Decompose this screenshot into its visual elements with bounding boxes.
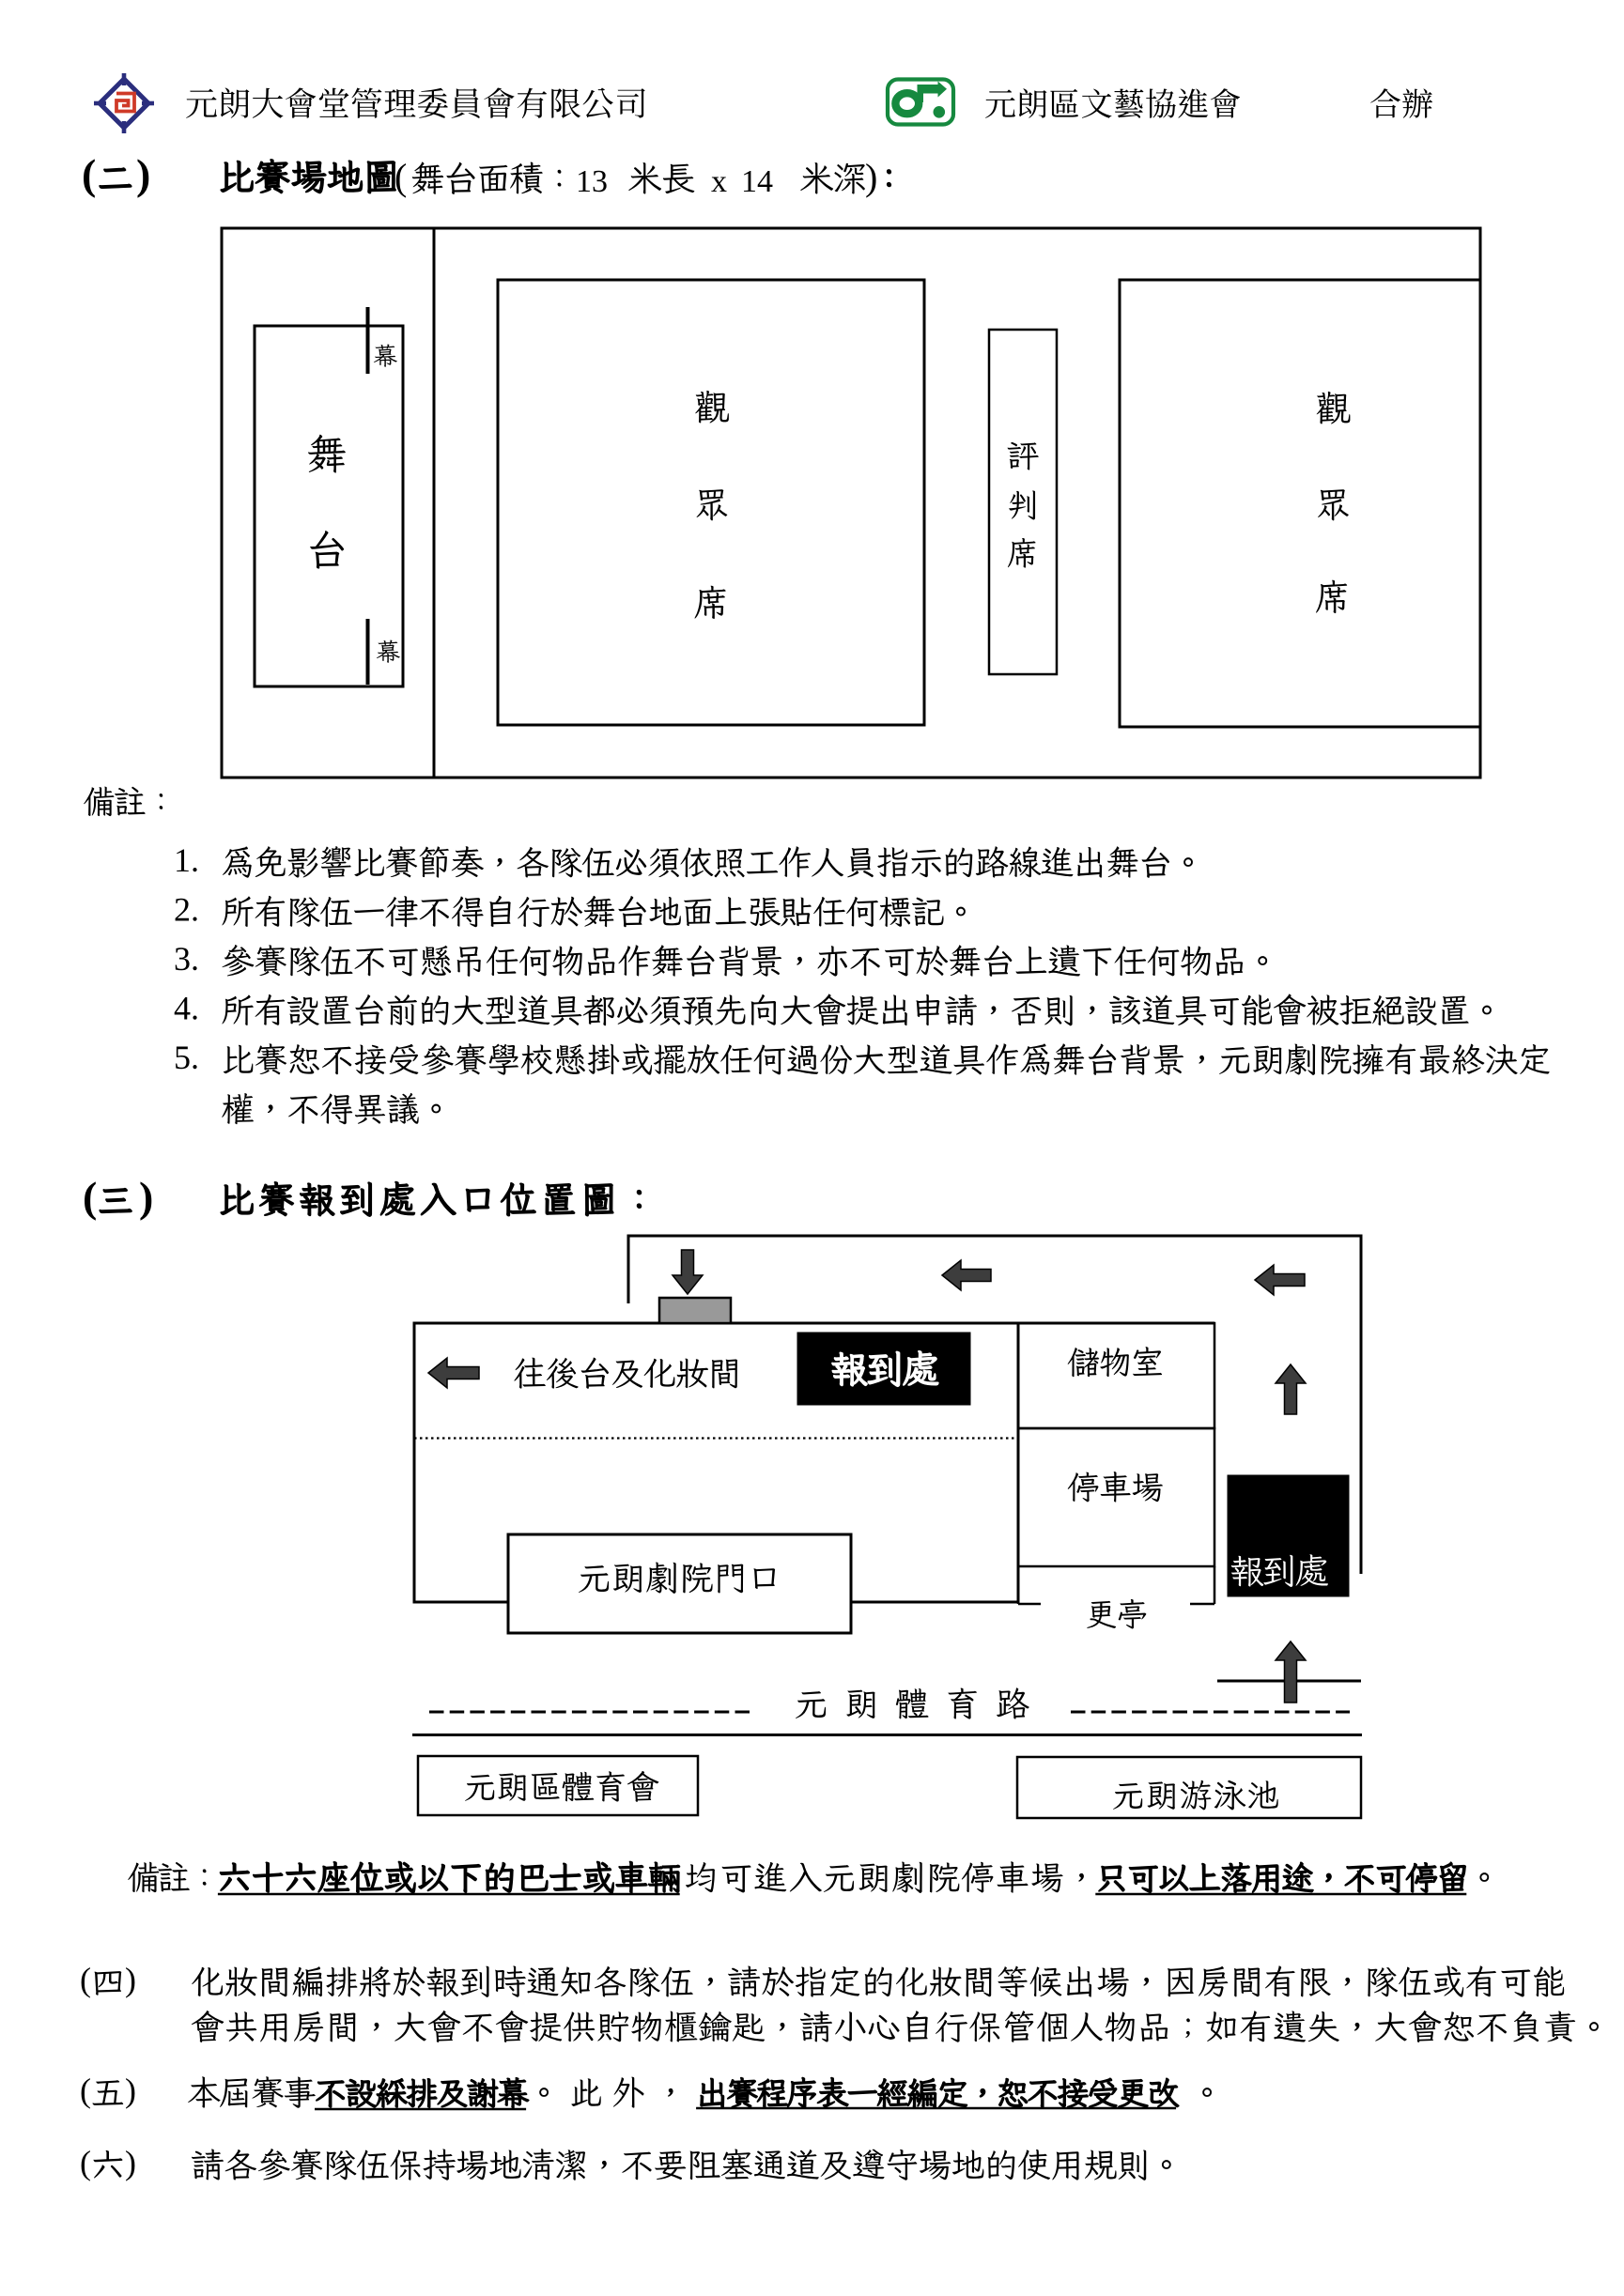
svg-text:): )	[125, 1961, 136, 1998]
svg-text:x: x	[711, 164, 727, 199]
svg-text:(: (	[83, 1173, 97, 1221]
svg-text:(: (	[82, 150, 96, 198]
svg-text:(: (	[80, 1961, 91, 1998]
svg-text:): )	[125, 2144, 136, 2181]
svg-text:): )	[136, 150, 150, 198]
svg-text:2.: 2.	[174, 891, 199, 929]
svg-text:): )	[125, 2072, 136, 2109]
svg-text:): )	[139, 1173, 153, 1221]
svg-text:(: (	[394, 156, 407, 198]
svg-text:4.: 4.	[174, 990, 199, 1027]
svg-text:5.: 5.	[174, 1039, 199, 1076]
svg-text:(: (	[80, 2144, 91, 2181]
svg-text:1.: 1.	[174, 841, 199, 879]
svg-text:): )	[865, 156, 877, 198]
svg-text:(: (	[80, 2072, 91, 2109]
svg-text:14: 14	[741, 164, 773, 199]
svg-text:13: 13	[576, 164, 608, 199]
svg-text:3.: 3.	[174, 940, 199, 978]
